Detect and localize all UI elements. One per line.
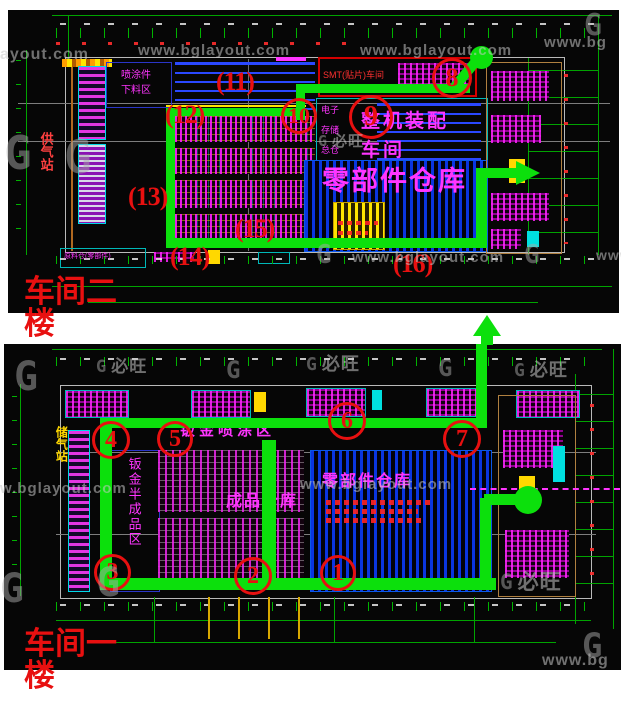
grid-line	[334, 597, 335, 642]
route-floor-arrow	[473, 315, 501, 336]
route-start-dot	[514, 486, 542, 514]
station-number: 6	[341, 408, 353, 435]
station-number: 1	[332, 560, 344, 587]
equipment-block	[491, 229, 521, 249]
dimension-ticks	[12, 396, 17, 581]
equipment-chip	[553, 446, 565, 482]
plan-workshop-2f: 喷涂件下料区 SMT(贴片)车间 电子 存储 总仓 整机装配车间 零部件仓库 原…	[8, 10, 619, 313]
small-text-marks	[326, 500, 430, 505]
station-6: 6	[328, 402, 366, 440]
route-segment	[476, 168, 518, 178]
dimension-ticks	[56, 28, 601, 38]
equipment-block	[491, 115, 541, 143]
dimension-ticks	[16, 60, 21, 240]
machinery-row	[175, 180, 315, 208]
route-segment	[480, 498, 491, 582]
equipment-block	[491, 71, 549, 101]
dimension-labels	[60, 23, 598, 25]
station-15: (15)	[235, 214, 274, 244]
grid-line	[56, 620, 591, 621]
route-segment	[476, 344, 487, 428]
dimension-labels	[60, 258, 598, 260]
station-number: 9	[364, 101, 378, 133]
grid-line	[96, 642, 556, 643]
room-label-gas-station: 储气站	[54, 426, 68, 484]
route-segment	[166, 238, 487, 248]
small-text-marks	[338, 231, 368, 235]
dimension-grid	[575, 394, 613, 599]
equipment-chip	[527, 231, 539, 247]
room-label-parts-warehouse: 零部件仓库	[322, 472, 412, 491]
route-segment	[484, 494, 518, 505]
grid-line	[474, 597, 475, 642]
equipment-block	[505, 530, 569, 578]
axis-marks	[564, 74, 568, 244]
station-number: 3	[107, 559, 119, 586]
room-label: 原料仓(零部件)	[64, 253, 111, 261]
station-number: 4	[105, 427, 117, 454]
station-7: 7	[443, 420, 481, 458]
station-14: (14)	[170, 242, 209, 272]
room-label: 存储	[321, 125, 339, 136]
route-segment	[476, 168, 487, 248]
station-3: 3	[94, 554, 131, 591]
storage-rack	[68, 430, 90, 592]
route-exit-arrow	[516, 161, 540, 185]
room-label-gas-station: 供气站	[38, 132, 54, 198]
room-label: 总仓	[321, 145, 339, 156]
ruler-line	[298, 597, 300, 639]
small-text-marks	[326, 518, 424, 523]
machinery-block	[158, 518, 304, 586]
grid-line	[88, 302, 538, 303]
wall-line	[71, 59, 73, 251]
station-number: 2	[247, 563, 259, 590]
small-room	[426, 388, 482, 417]
station-12: (12)	[165, 100, 204, 130]
storage-rack	[78, 144, 106, 224]
station-number: 5	[169, 426, 181, 453]
axis-marks	[56, 42, 356, 45]
station-11: (11)	[216, 67, 254, 97]
station-5: 5	[157, 421, 193, 457]
route-segment	[100, 418, 487, 428]
room-label-parts-warehouse: 零部件仓库	[322, 165, 467, 197]
station-10: 10	[281, 98, 317, 134]
station-2: 2	[234, 557, 272, 595]
wall-line	[276, 57, 306, 61]
small-text-marks	[338, 221, 378, 225]
station-9: 9	[349, 95, 393, 139]
grid-line	[52, 286, 612, 287]
station-4: 4	[92, 421, 130, 459]
grid-line	[154, 597, 155, 642]
grid-line	[26, 50, 27, 255]
grid-line	[52, 15, 612, 16]
ruler-line	[208, 597, 210, 639]
grid-line	[20, 384, 21, 596]
storage-rack	[78, 66, 106, 140]
floor-label-2f: 车间二楼	[24, 276, 136, 340]
station-1: 1	[320, 555, 356, 591]
machinery-row	[175, 148, 315, 174]
room-label: 电子	[321, 105, 339, 116]
ruler-line	[268, 597, 270, 639]
plan-workshop-1f: 储气站 钣金半成品区 钣金喷涂区 零部件仓库 成品仓库	[4, 344, 621, 670]
route-segment	[100, 578, 496, 590]
equipment-block	[491, 193, 549, 221]
equipment-chip	[254, 392, 266, 412]
dashed-boundary	[470, 488, 620, 490]
room-label: 喷涂件下料区	[121, 69, 157, 98]
station-number: 8	[446, 63, 459, 93]
room-label: SMT(贴片)车间	[323, 70, 393, 81]
cad-route-screenshot: 喷涂件下料区 SMT(贴片)车间 电子 存储 总仓 整机装配车间 零部件仓库 原…	[0, 0, 621, 704]
grid-line	[598, 15, 599, 255]
room-paint-unload: 喷涂件下料区	[106, 62, 172, 108]
small-room	[65, 390, 129, 418]
small-room	[191, 390, 251, 418]
station-16: (16)	[393, 249, 432, 279]
station-number: 7	[456, 426, 468, 453]
station-13: (13)	[128, 182, 167, 212]
dimension-labels	[60, 358, 582, 360]
ruler-line	[238, 597, 240, 639]
grid-line	[52, 349, 602, 350]
floor-label-1f: 车间一楼	[24, 628, 136, 692]
axis-marks	[590, 404, 594, 584]
side-rooms	[486, 62, 562, 254]
route-segment	[481, 334, 493, 345]
small-text-marks	[326, 509, 418, 514]
dimension-labels	[60, 604, 582, 606]
station-8: 8	[432, 58, 472, 98]
equipment-chip	[372, 390, 382, 410]
station-number: 10	[288, 103, 310, 129]
